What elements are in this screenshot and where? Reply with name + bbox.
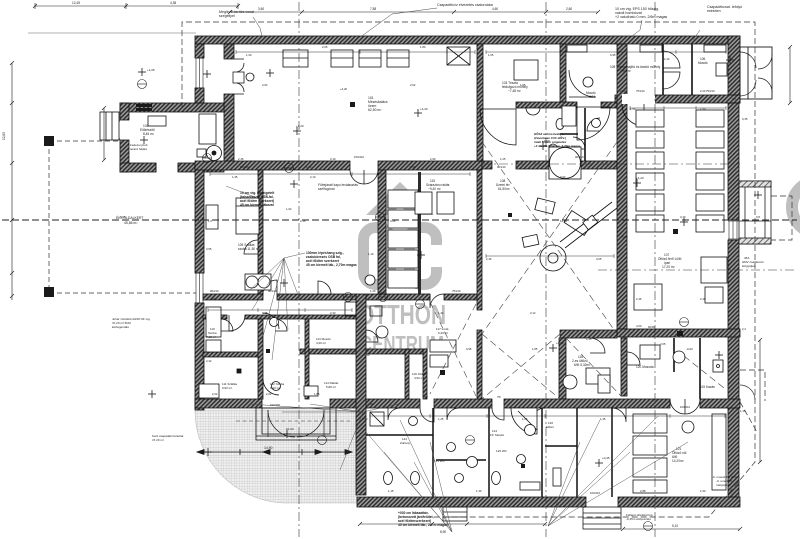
svg-text:60/: 60/ bbox=[370, 402, 374, 406]
svg-text:119 Kazán: 119 Kazán bbox=[700, 385, 715, 389]
svg-text:~7,48 m²: ~7,48 m² bbox=[508, 89, 521, 93]
svg-text:8,46 m²: 8,46 m² bbox=[143, 132, 154, 136]
svg-text:4,52 m²: 4,52 m² bbox=[414, 376, 424, 380]
svg-text:90/210: 90/210 bbox=[575, 155, 584, 159]
svg-text:6/fő 5,32m²: 6/fő 5,32m² bbox=[574, 363, 590, 367]
svg-text:12,45: 12,45 bbox=[72, 1, 80, 5]
svg-text:kútgyűjtés: kútgyűjtés bbox=[742, 264, 756, 268]
svg-text:1,95: 1,95 bbox=[520, 83, 526, 87]
svg-text:90/210: 90/210 bbox=[210, 289, 219, 293]
svg-text:1,35: 1,35 bbox=[740, 409, 746, 413]
svg-text:0,90: 0,90 bbox=[362, 417, 368, 421]
svg-text:2,62: 2,62 bbox=[410, 83, 416, 87]
svg-text:2,2: 2,2 bbox=[742, 327, 746, 331]
svg-text:2,20: 2,20 bbox=[700, 89, 706, 93]
svg-text:7,58: 7,58 bbox=[370, 7, 376, 11]
svg-text:104: 104 bbox=[590, 95, 596, 99]
svg-text:14,20m²: 14,20m² bbox=[672, 459, 684, 463]
svg-text:100/210: 100/210 bbox=[590, 491, 601, 495]
svg-text:0,90: 0,90 bbox=[560, 175, 566, 179]
svg-text:terasz feljáró: terasz feljáró bbox=[130, 147, 148, 151]
svg-text:Mosdó: Mosdó bbox=[698, 61, 708, 65]
svg-text:14,90: 14,90 bbox=[264, 446, 273, 450]
svg-text:Zuhany: Zuhany bbox=[400, 441, 411, 445]
svg-text:0,95: 0,95 bbox=[610, 53, 616, 57]
svg-text:0,95: 0,95 bbox=[466, 347, 472, 351]
svg-text:+2 vakolható 0 mm, 2/6m magas: +2 vakolható 0 mm, 2/6m magas bbox=[615, 15, 667, 19]
svg-text:±0,00: ±0,00 bbox=[286, 427, 294, 431]
svg-text:17,20 m²: 17,20 m² bbox=[662, 265, 675, 269]
svg-text:2,45: 2,45 bbox=[238, 157, 244, 161]
svg-text:1,90: 1,90 bbox=[700, 489, 706, 493]
svg-text:FF. Mosdó: FF. Mosdó bbox=[490, 433, 504, 437]
svg-text:+4,20: +4,20 bbox=[420, 107, 428, 111]
svg-text:közlegendás: közlegendás bbox=[112, 325, 129, 329]
svg-text:4,38: 4,38 bbox=[170, 1, 176, 5]
svg-text:+4,20: +4,20 bbox=[340, 87, 348, 91]
svg-text:12,80: 12,80 bbox=[560, 219, 567, 223]
svg-text:1,10: 1,10 bbox=[364, 353, 370, 357]
svg-text:+0,00: +0,00 bbox=[542, 139, 550, 143]
svg-text:0,8: 0,8 bbox=[756, 215, 760, 219]
svg-text:2,46: 2,46 bbox=[486, 257, 492, 261]
svg-text:2,05: 2,05 bbox=[660, 342, 666, 346]
svg-text:62,50 m²: 62,50 m² bbox=[368, 108, 382, 112]
svg-text:2,46: 2,46 bbox=[700, 297, 706, 301]
svg-text:+1,05: +1,05 bbox=[147, 68, 155, 72]
svg-text:4,60: 4,60 bbox=[492, 7, 498, 11]
svg-text:+4,20: +4,20 bbox=[636, 176, 644, 180]
svg-text:75/210: 75/210 bbox=[706, 89, 715, 93]
svg-text:1,20: 1,20 bbox=[246, 53, 252, 57]
svg-text:1,80: 1,80 bbox=[420, 45, 426, 49]
svg-text:123 WC: 123 WC bbox=[434, 459, 446, 463]
svg-text:60/90: 60/90 bbox=[648, 325, 655, 329]
svg-text:1,0: 1,0 bbox=[208, 219, 212, 223]
svg-text:90/210: 90/210 bbox=[240, 165, 249, 169]
svg-text:4,60: 4,60 bbox=[636, 324, 642, 328]
svg-text:3,55: 3,55 bbox=[206, 247, 212, 251]
svg-text:szélfogóval: szélfogóval bbox=[318, 187, 335, 191]
svg-text:45 cm kiemelt lábazat: 45 cm kiemelt lábazat bbox=[240, 203, 275, 207]
svg-text:1,15: 1,15 bbox=[388, 489, 394, 493]
svg-text:1,50: 1,50 bbox=[630, 107, 636, 111]
svg-text:~9,40 m²: ~9,40 m² bbox=[428, 187, 441, 191]
svg-text:6,20 m²: 6,20 m² bbox=[438, 331, 448, 335]
svg-text:120 Mosoda: 120 Mosoda bbox=[636, 365, 654, 369]
svg-text:Előtér: Előtér bbox=[546, 425, 554, 429]
svg-text:esésben: esésben bbox=[707, 9, 721, 13]
svg-text:+0,00: +0,00 bbox=[556, 341, 564, 345]
svg-text:2,90: 2,90 bbox=[430, 157, 436, 161]
svg-text:12,65: 12,65 bbox=[2, 132, 6, 140]
svg-text:3,12: 3,12 bbox=[530, 311, 536, 315]
svg-text:5,10: 5,10 bbox=[672, 524, 678, 528]
svg-text:Csapadékvíz elvezetés csatorná: Csapadékvíz elvezetés csatornába bbox=[437, 3, 493, 7]
svg-text:1,2: 1,2 bbox=[732, 97, 736, 101]
svg-text:+0,45: +0,45 bbox=[602, 456, 610, 460]
svg-text:1,05: 1,05 bbox=[522, 417, 528, 421]
svg-text:-0,45m süllyesztés: -0,45m süllyesztés bbox=[626, 517, 651, 521]
svg-text:1,50: 1,50 bbox=[700, 107, 706, 111]
svg-text:75/210: 75/210 bbox=[636, 89, 645, 93]
svg-text:90/210: 90/210 bbox=[497, 165, 506, 169]
svg-text:45,86 m²: 45,86 m² bbox=[124, 221, 138, 225]
svg-text:OTTHON: OTTHON bbox=[358, 299, 446, 330]
svg-text:9,52 m²: 9,52 m² bbox=[222, 386, 232, 390]
svg-text:75/210: 75/210 bbox=[452, 289, 461, 293]
svg-text:szegéllyel: szegéllyel bbox=[219, 14, 235, 18]
svg-text:8,05: 8,05 bbox=[120, 215, 126, 219]
svg-text:2,30: 2,30 bbox=[330, 311, 336, 315]
svg-text:2,42: 2,42 bbox=[206, 359, 212, 363]
svg-text:2,46: 2,46 bbox=[636, 297, 642, 301]
svg-text:90/: 90/ bbox=[424, 395, 428, 399]
svg-text:0,35: 0,35 bbox=[742, 117, 748, 121]
svg-text:1,05: 1,05 bbox=[488, 53, 494, 57]
svg-text:1,40: 1,40 bbox=[370, 289, 376, 293]
svg-text:1,25: 1,25 bbox=[500, 157, 506, 161]
svg-text:2,60: 2,60 bbox=[566, 7, 572, 11]
svg-text:1,35: 1,35 bbox=[232, 175, 238, 179]
svg-text:61,50m²: 61,50m² bbox=[498, 187, 510, 191]
svg-text:1,25: 1,25 bbox=[438, 417, 444, 421]
svg-text:2,15: 2,15 bbox=[300, 219, 306, 223]
svg-text:5,80: 5,80 bbox=[622, 235, 628, 239]
svg-text:2,20: 2,20 bbox=[620, 89, 626, 93]
svg-text:+2 vízálló OSB lap, 2,70m maga: +2 vízálló OSB lap, 2,70m magas bbox=[534, 144, 581, 148]
svg-text:47,20 m²: 47,20 m² bbox=[152, 438, 164, 442]
svg-text:90/2: 90/2 bbox=[586, 405, 592, 409]
svg-text:2,02: 2,02 bbox=[266, 392, 272, 396]
svg-text:8,90: 8,90 bbox=[440, 530, 446, 534]
svg-text:1,88: 1,88 bbox=[314, 392, 320, 396]
svg-text:7,10 m²: 7,10 m² bbox=[206, 335, 216, 339]
svg-text:3,26: 3,26 bbox=[390, 219, 396, 223]
svg-text:150/260: 150/260 bbox=[270, 403, 281, 407]
svg-text:1,10: 1,10 bbox=[368, 252, 374, 256]
svg-text:90/210: 90/210 bbox=[268, 289, 277, 293]
svg-text:3,10: 3,10 bbox=[330, 157, 336, 161]
svg-text:125 WC: 125 WC bbox=[496, 449, 508, 453]
svg-text:1,02: 1,02 bbox=[286, 207, 292, 211]
svg-text:2,02: 2,02 bbox=[212, 392, 218, 396]
svg-text:1,15: 1,15 bbox=[262, 311, 268, 315]
svg-text:45 cm kiemelt láb., 2/6 m maga: 45 cm kiemelt láb., 2/6 m magas bbox=[398, 523, 448, 527]
svg-text:5,80 m²: 5,80 m² bbox=[326, 385, 336, 389]
svg-text:2,10: 2,10 bbox=[310, 175, 316, 179]
svg-text:1,85: 1,85 bbox=[532, 347, 538, 351]
svg-text:1,35: 1,35 bbox=[586, 337, 592, 341]
svg-text:3,05: 3,05 bbox=[596, 257, 602, 261]
svg-text:1,52: 1,52 bbox=[410, 165, 416, 169]
svg-text:9,10 m²: 9,10 m² bbox=[270, 386, 280, 390]
svg-text:45 cm kiemelt láb., 2,70m maga: 45 cm kiemelt láb., 2,70m magas bbox=[306, 263, 357, 267]
svg-text:~7,90 m²: ~7,90 m² bbox=[618, 69, 631, 73]
svg-text:150/210: 150/210 bbox=[354, 155, 365, 159]
svg-text:1,20: 1,20 bbox=[664, 57, 670, 61]
svg-text:+4,20: +4,20 bbox=[296, 124, 304, 128]
svg-text:1,45: 1,45 bbox=[600, 417, 606, 421]
svg-text:1,42: 1,42 bbox=[438, 311, 444, 315]
svg-text:3,40: 3,40 bbox=[680, 215, 686, 219]
svg-text:3,60: 3,60 bbox=[258, 7, 264, 11]
svg-text:4,20 m²: 4,20 m² bbox=[316, 341, 326, 345]
svg-text:-0,02: -0,02 bbox=[686, 347, 693, 351]
svg-text:2,88: 2,88 bbox=[640, 489, 646, 493]
svg-text:2,62: 2,62 bbox=[262, 83, 268, 87]
svg-text:mélyépítés: mélyépítés bbox=[716, 483, 731, 487]
svg-text:szoba 11,50 m²: szoba 11,50 m² bbox=[238, 247, 260, 251]
svg-text:75/: 75/ bbox=[497, 395, 501, 399]
svg-text:100/210: 100/210 bbox=[680, 405, 691, 409]
svg-text:1,30: 1,30 bbox=[476, 489, 482, 493]
svg-text:2,05: 2,05 bbox=[322, 45, 328, 49]
svg-text:1,75: 1,75 bbox=[306, 165, 312, 169]
svg-text:Mosdó: Mosdó bbox=[586, 91, 596, 95]
svg-text:95/: 95/ bbox=[212, 297, 216, 301]
